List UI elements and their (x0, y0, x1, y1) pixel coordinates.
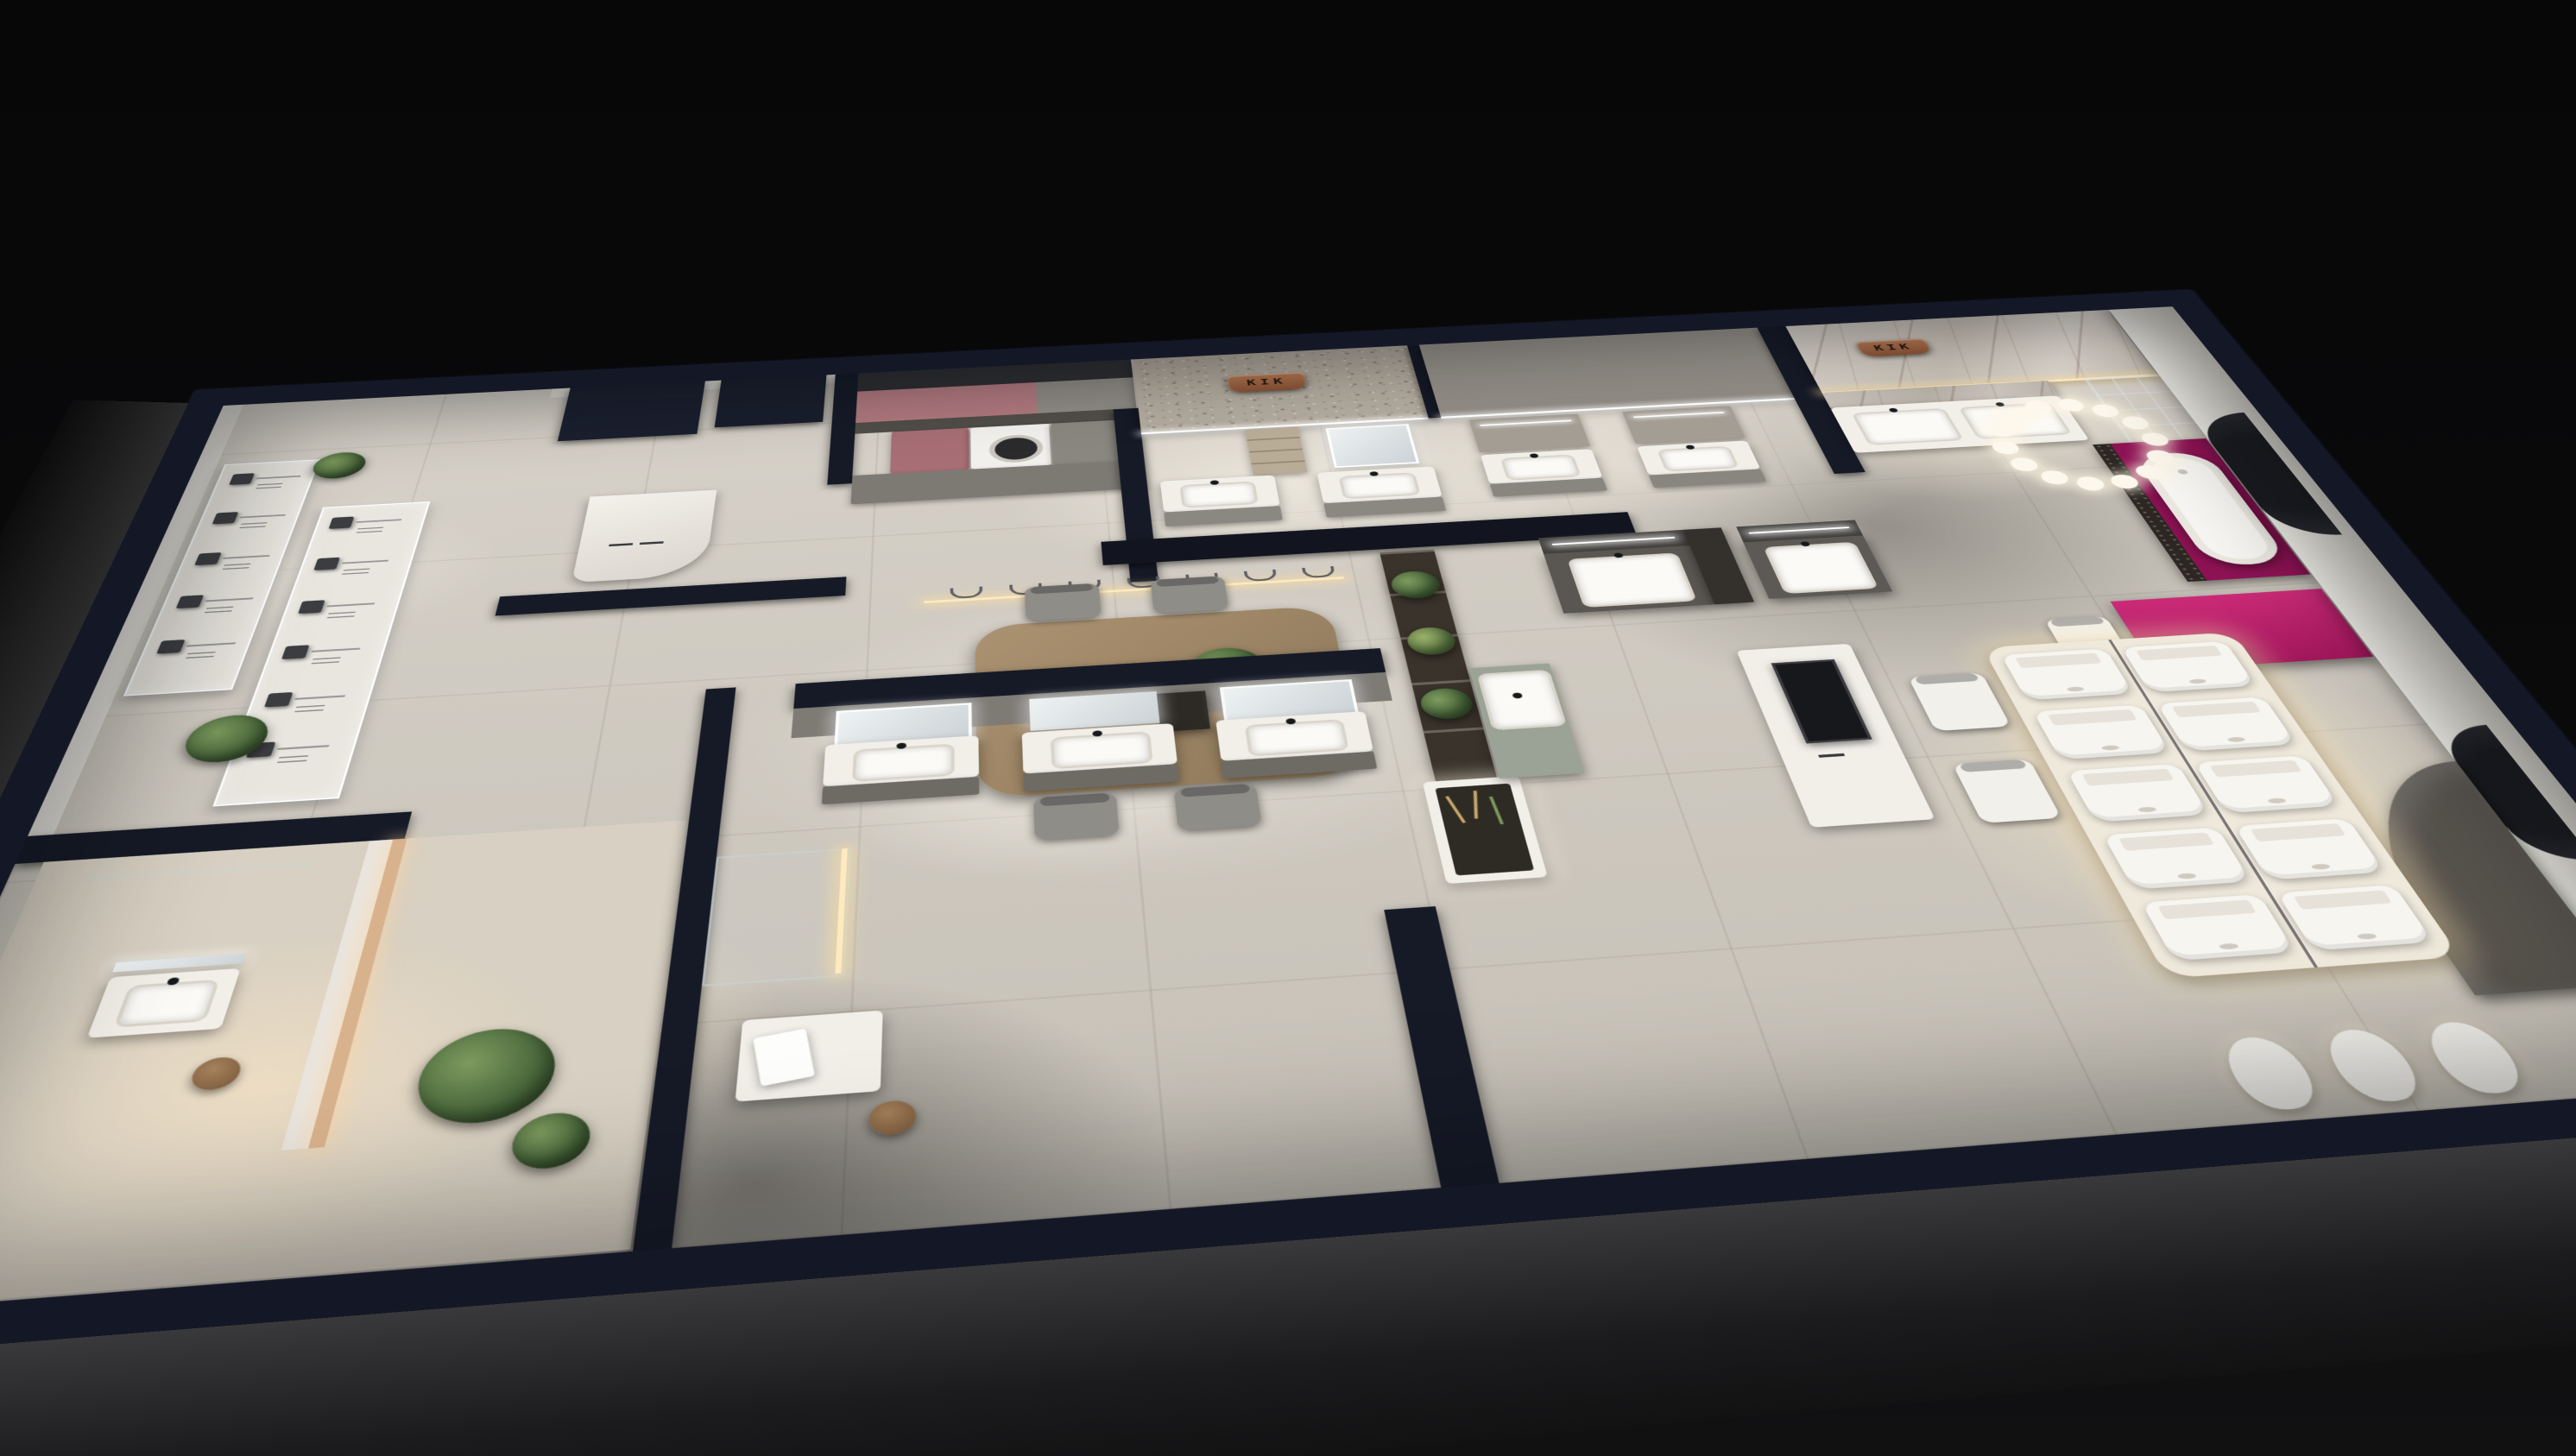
spec-label-lines (187, 652, 216, 654)
toilet (2103, 827, 2251, 889)
vanity-b2-mirror-cabinet (1622, 406, 1746, 444)
shower-head-icon (229, 473, 255, 485)
vanity-b1-mirror-cabinet (1469, 413, 1591, 451)
sw-vanity-basin (113, 980, 219, 1028)
meeting-chair (1033, 792, 1120, 840)
vanity-a1-basin (1179, 481, 1259, 507)
display-block-navy (715, 375, 827, 427)
vip-basin-left (1851, 408, 1964, 445)
mirror-led-strip (1480, 419, 1572, 425)
shower-pipe (205, 597, 253, 602)
vanity-c1-body (1544, 545, 1714, 614)
hanger-arc-icon (1302, 566, 1335, 578)
sw-vanity-counter (87, 968, 241, 1038)
spec-label-lines (279, 755, 308, 759)
shower-head-icon (212, 512, 239, 524)
laundry-pink-cabinet (890, 428, 969, 474)
vanity-d1-basin (852, 743, 955, 782)
urinal-row (2214, 1019, 2534, 1112)
chandelier-bubble-icon (2005, 455, 2043, 474)
shower-fixture (288, 592, 390, 635)
vanity-c2-basin (1763, 542, 1878, 594)
towel (753, 1028, 815, 1086)
white-planter-box (1423, 776, 1548, 884)
shower-fixture (271, 636, 376, 681)
spec-label-lines (313, 657, 341, 659)
shower-pipe (277, 745, 329, 750)
hanger-arc-icon (1244, 570, 1278, 582)
spec-label-lines (328, 611, 356, 614)
showroom-floorplan: KIK (0, 289, 2576, 1365)
display-block-navy (558, 381, 705, 441)
laundry-gray-wall (1036, 377, 1137, 413)
media-display-counter (1736, 644, 1935, 828)
wood-stool (868, 1100, 916, 1137)
washing-machine (970, 424, 1051, 470)
brand-sign-text: KIK (1872, 343, 1916, 351)
room-wall-south (496, 577, 847, 615)
concrete-wall (1419, 328, 1795, 418)
planter-grasses (1435, 784, 1534, 876)
shower-head-icon (298, 600, 325, 614)
shower-pipe (356, 519, 401, 523)
showroom-floor: KIK (0, 306, 2576, 1316)
shower-pipe (311, 647, 360, 652)
towel-vanity (736, 1010, 883, 1101)
toilet (2001, 648, 2133, 700)
toilet-grid (2001, 641, 2437, 966)
shower-head-icon (264, 692, 293, 708)
spec-label-lines (206, 606, 234, 608)
render-stage: KIK (0, 0, 2576, 1456)
toilet (2156, 696, 2295, 751)
shower-head-icon (156, 640, 185, 654)
vanity-b2-basin (1657, 445, 1739, 471)
shower-pipe (223, 555, 270, 559)
shower-head-icon (329, 516, 355, 528)
vanity-c1-basin (1567, 552, 1697, 608)
shower-pipe (342, 560, 388, 564)
faucet-icon (1613, 552, 1624, 558)
spec-label-lines (357, 526, 383, 529)
shower-fixture (165, 587, 259, 629)
toilet (2121, 641, 2256, 692)
shower-head-icon (176, 595, 205, 608)
room-wall (827, 373, 858, 484)
guest-chair (1908, 672, 2011, 731)
shower-fixture (184, 545, 275, 585)
brand-sign-text: KIK (1246, 377, 1287, 387)
shower-fixture (254, 683, 362, 730)
spec-label-lines (224, 564, 250, 566)
guest-chair (1953, 759, 2061, 823)
faucet-icon (1529, 453, 1538, 457)
vanity-a1-shelf-tower (1245, 427, 1307, 476)
shower-pipe (256, 476, 300, 479)
shower-head-icon (313, 558, 340, 570)
shower-fixture (145, 632, 243, 676)
toilet (2194, 755, 2339, 813)
shower-head-icon (194, 552, 222, 565)
toilet (2142, 894, 2295, 961)
spec-label-lines (296, 705, 325, 708)
meeting-chair (1025, 583, 1102, 621)
glass-shower-enclosure (702, 848, 851, 986)
green-wall-basin (1477, 670, 1568, 731)
shower-fixture (219, 467, 306, 503)
shower-fixture (319, 509, 416, 548)
chandelier-bubble-icon (2037, 468, 2072, 487)
shower-pipe (186, 642, 236, 646)
wall-finger-center (1384, 906, 1499, 1188)
vanity-b1-basin (1500, 454, 1582, 480)
desk-brand-lettering (609, 541, 664, 546)
shower-pipe (240, 514, 286, 519)
mirror-led-strip (1633, 412, 1725, 418)
shower-head-icon (281, 645, 309, 659)
shower-fixture (202, 505, 291, 543)
chandelier-bubble-icon (2075, 476, 2106, 491)
vanity-d3-basin (1245, 719, 1349, 756)
toilet (2067, 764, 2209, 823)
spec-label-lines (241, 522, 267, 525)
shower-pipe (294, 695, 345, 700)
potted-plant (308, 451, 369, 480)
vanity-d2-basin (1051, 731, 1153, 769)
tv-screen (1771, 659, 1872, 744)
vanity-a2-led-mirror (1325, 424, 1419, 468)
toilet (2033, 704, 2170, 760)
meeting-chair (1174, 784, 1262, 831)
service-desk (571, 489, 717, 583)
vanity-c2-body (1743, 535, 1892, 598)
spec-label-lines (344, 568, 370, 570)
urinal (2415, 1019, 2533, 1095)
spec-label-lines (257, 483, 283, 486)
shower-pipe (326, 602, 375, 607)
meeting-chair (1150, 576, 1228, 614)
control-pad (1818, 753, 1845, 758)
shower-fixture (305, 550, 404, 590)
hanger-arc-icon (950, 586, 982, 598)
urinal (2315, 1027, 2430, 1104)
urinal (2214, 1035, 2327, 1112)
vanity-a2-basin (1338, 472, 1420, 499)
